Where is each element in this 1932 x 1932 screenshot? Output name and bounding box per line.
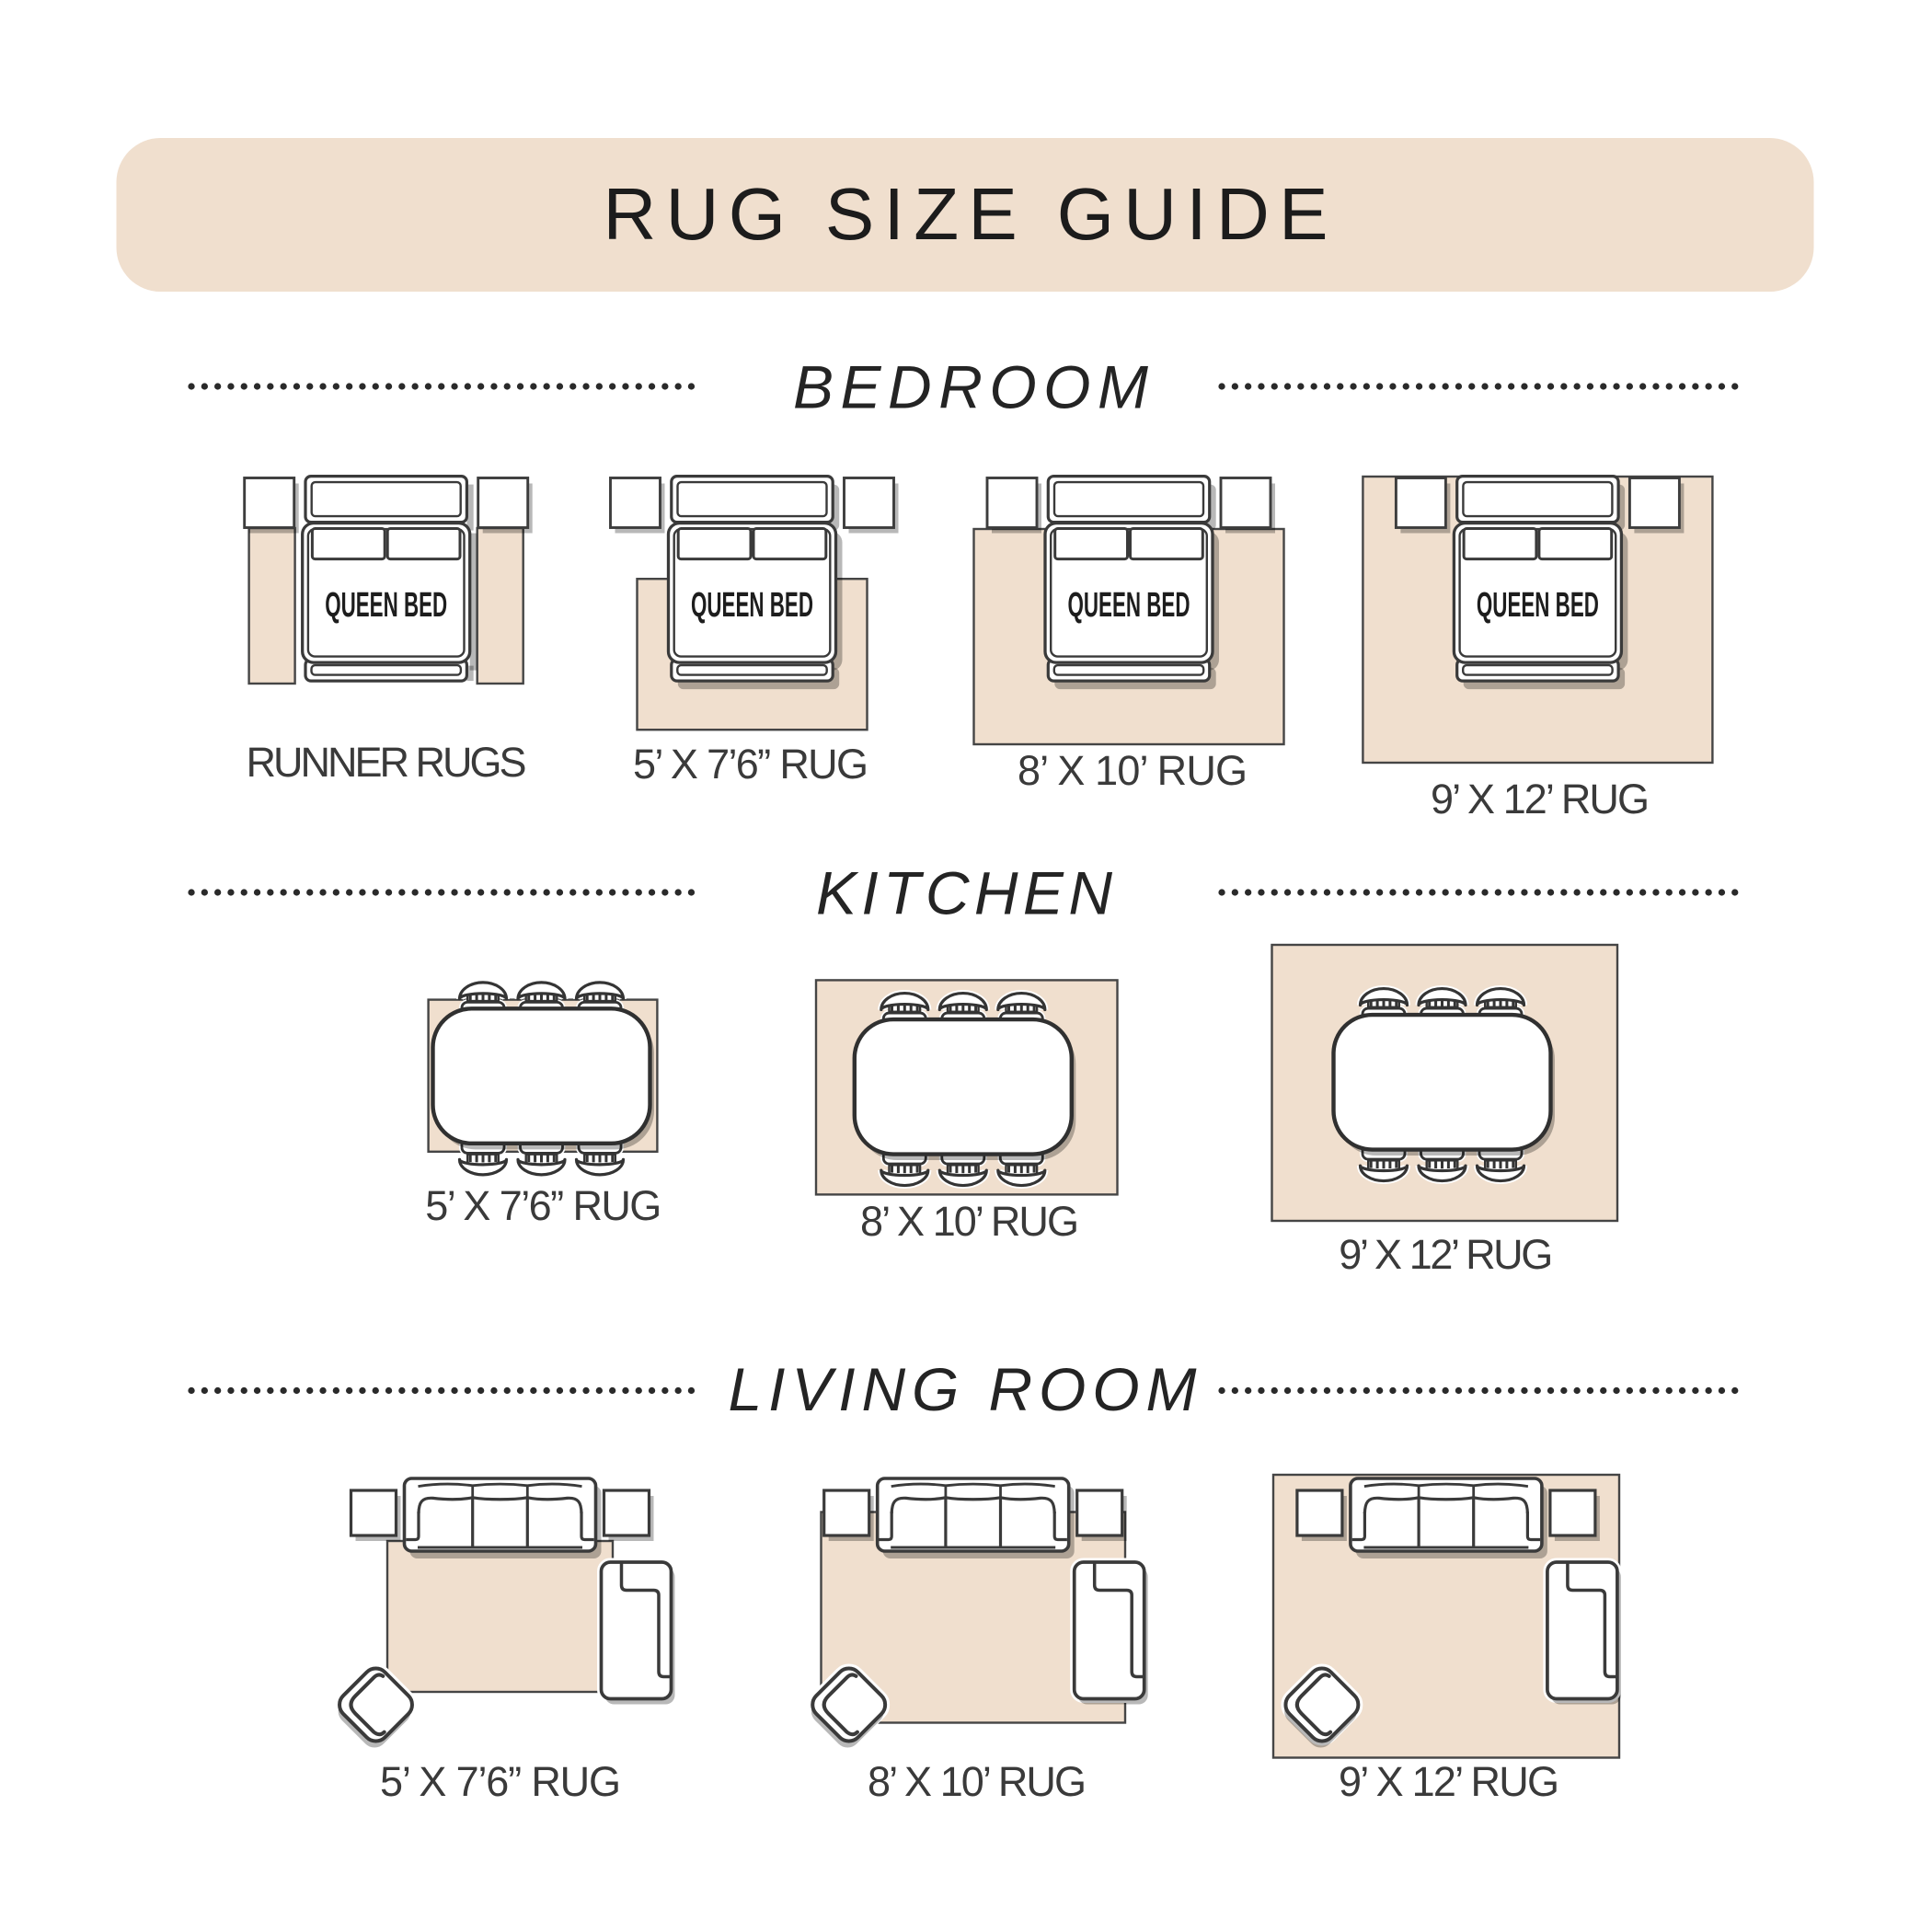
- svg-text:5’ X 7’6” RUG: 5’ X 7’6” RUG: [633, 741, 868, 788]
- svg-text:LIVING ROOM: LIVING ROOM: [729, 1355, 1197, 1423]
- svg-text:RUNNER RUGS: RUNNER RUGS: [247, 739, 527, 786]
- svg-text:5’ X 7’6” RUG: 5’ X 7’6” RUG: [425, 1182, 661, 1229]
- svg-text:8’ X 10’ RUG: 8’ X 10’ RUG: [1018, 747, 1248, 794]
- svg-text:5’ X 7’6” RUG: 5’ X 7’6” RUG: [380, 1758, 621, 1805]
- svg-text:8’ X 10’ RUG: 8’ X 10’ RUG: [868, 1758, 1087, 1805]
- svg-text:8’ X 10’ RUG: 8’ X 10’ RUG: [860, 1198, 1079, 1245]
- svg-text:KITCHEN: KITCHEN: [816, 859, 1112, 927]
- svg-text:9’ X 12’ RUG: 9’ X 12’ RUG: [1431, 776, 1650, 822]
- svg-text:9’ X 12’ RUG: 9’ X 12’ RUG: [1339, 1231, 1553, 1278]
- svg-text:9’ X 12’ RUG: 9’ X 12’ RUG: [1339, 1758, 1559, 1805]
- svg-text:BEDROOM: BEDROOM: [793, 353, 1148, 421]
